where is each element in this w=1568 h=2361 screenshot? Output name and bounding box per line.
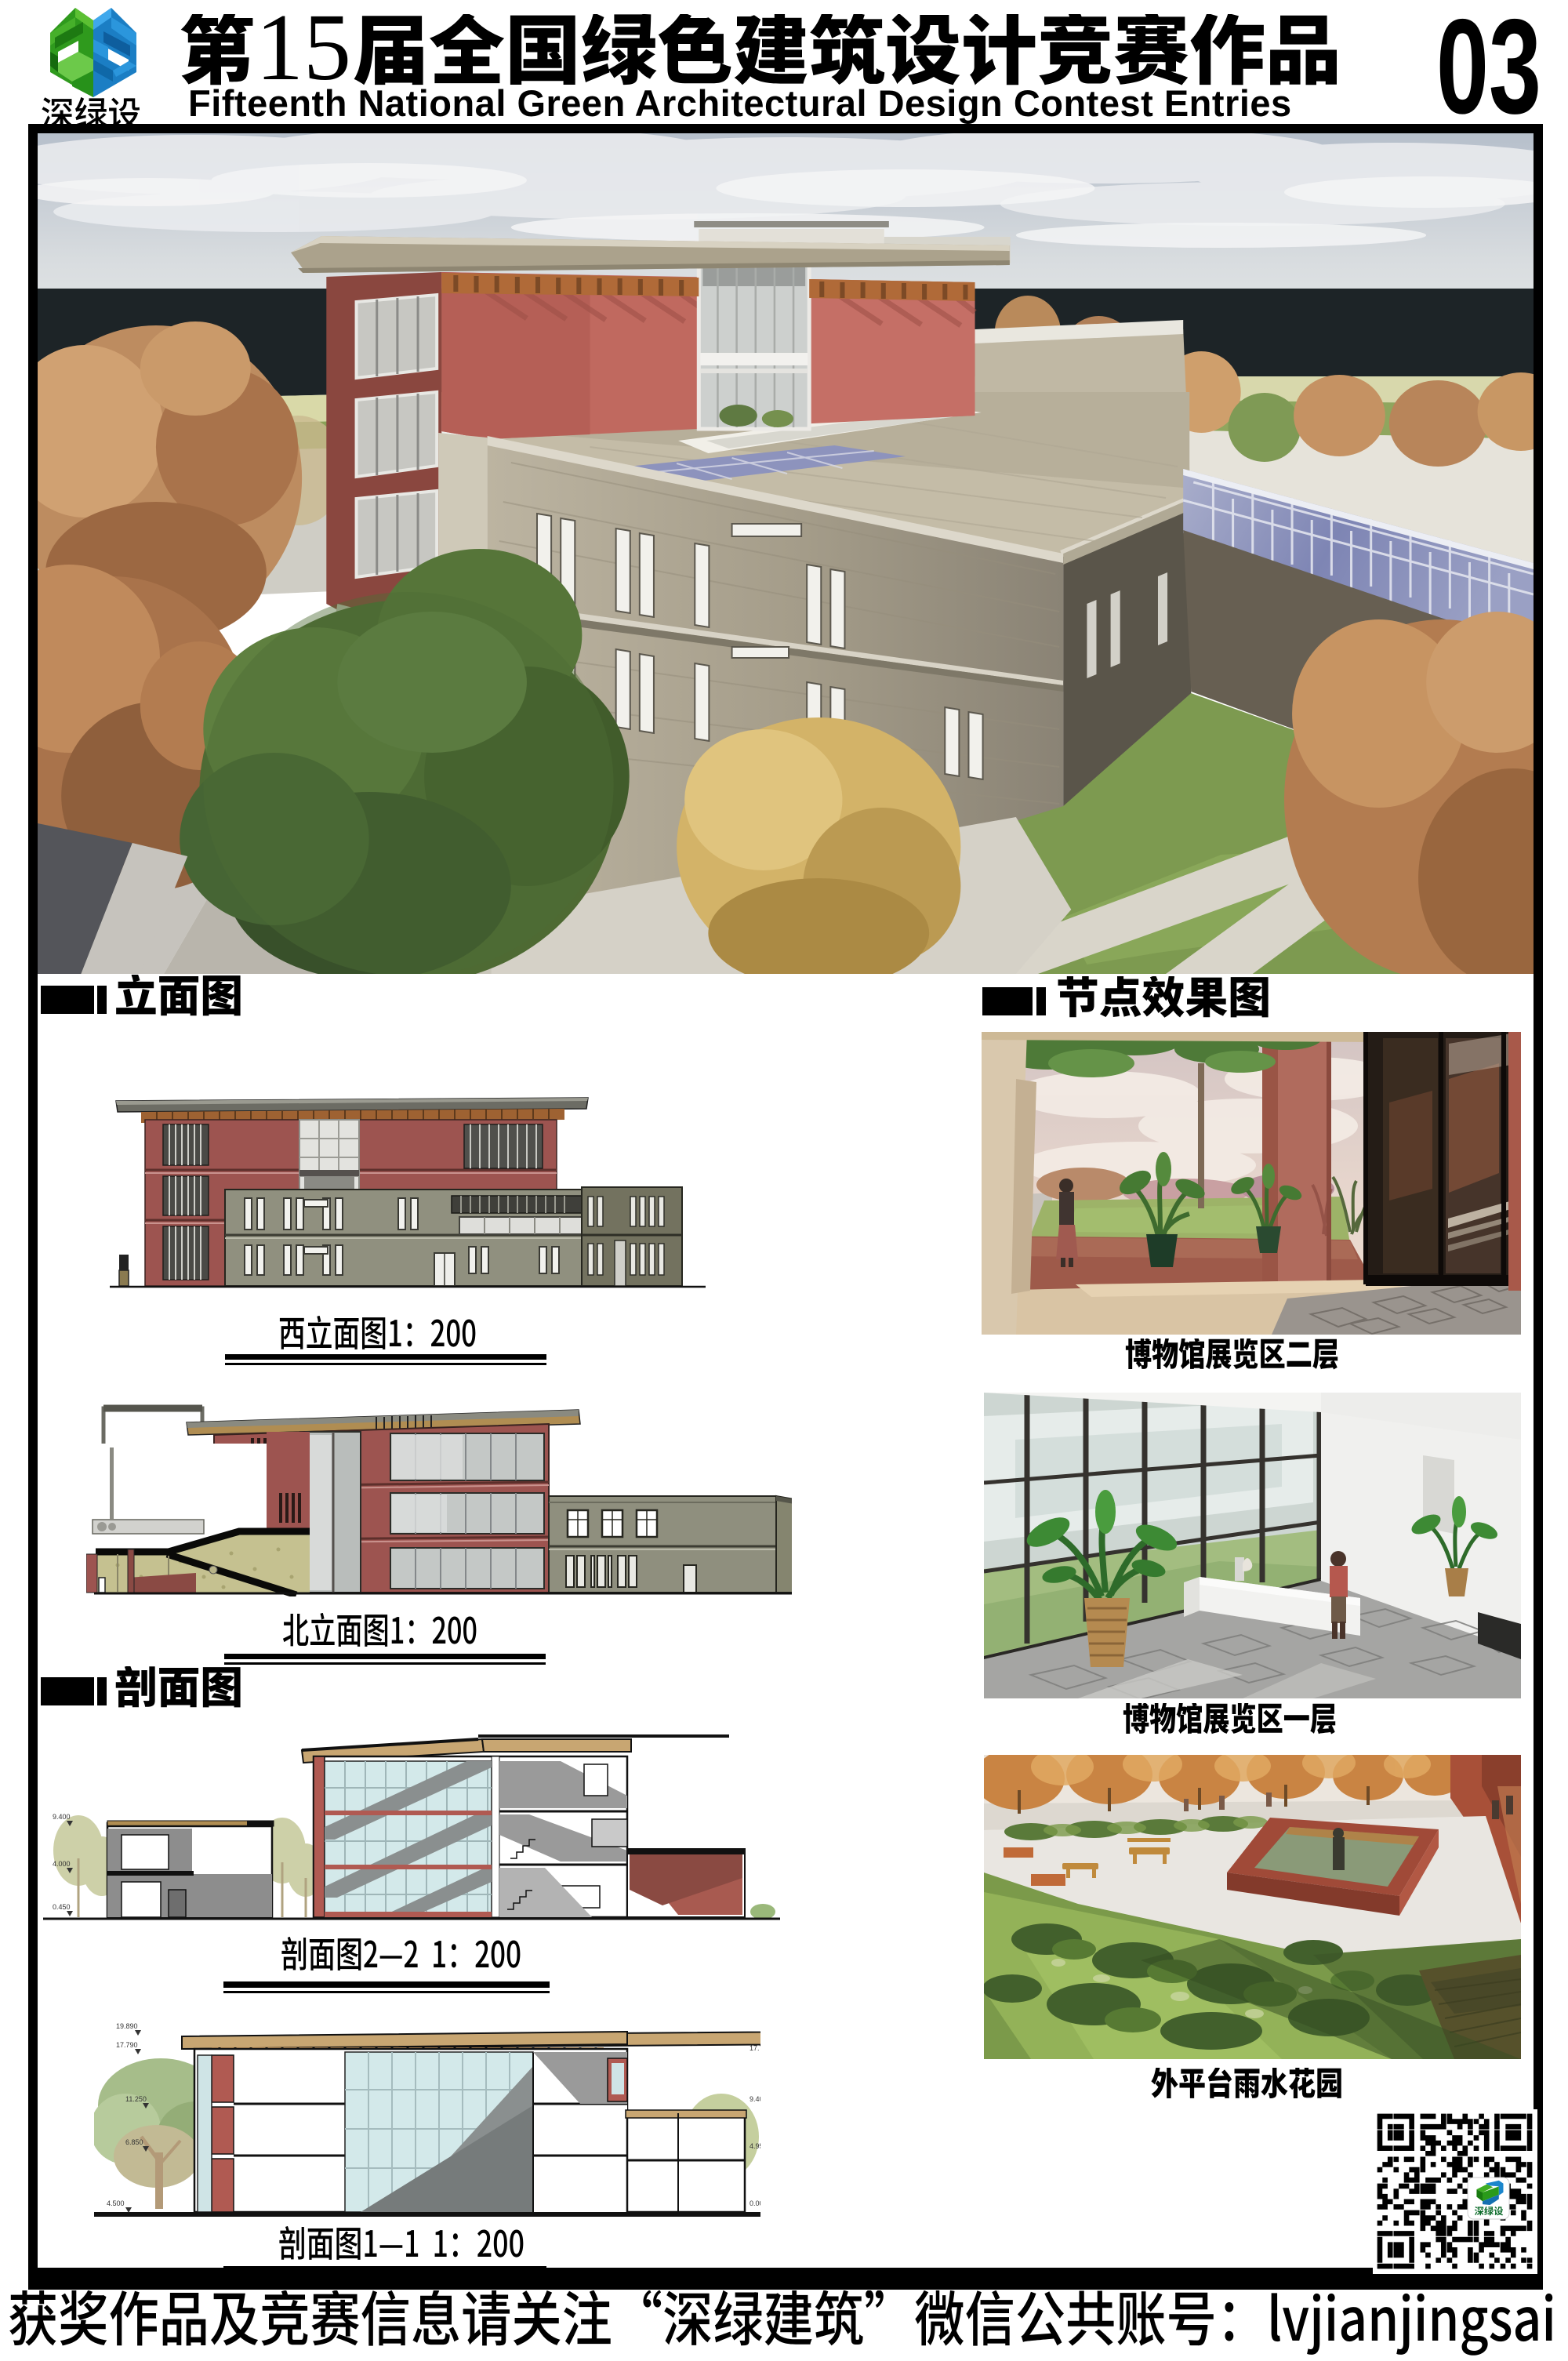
- svg-text:9.400: 9.400: [53, 1813, 71, 1821]
- svg-text:19.890: 19.890: [116, 2022, 138, 2030]
- svg-text:4.950: 4.950: [750, 2142, 760, 2150]
- svg-text:9.400: 9.400: [750, 2095, 760, 2103]
- svg-text:4.000: 4.000: [53, 1860, 71, 1868]
- svg-text:0.450: 0.450: [53, 1903, 71, 1911]
- svg-text:6.850: 6.850: [125, 2138, 143, 2146]
- svg-text:11.250: 11.250: [125, 2095, 147, 2103]
- svg-text:0.000: 0.000: [750, 2199, 760, 2207]
- svg-text:17.790: 17.790: [750, 2044, 760, 2052]
- svg-text:17.790: 17.790: [116, 2041, 138, 2049]
- svg-text:4.500: 4.500: [107, 2199, 125, 2207]
